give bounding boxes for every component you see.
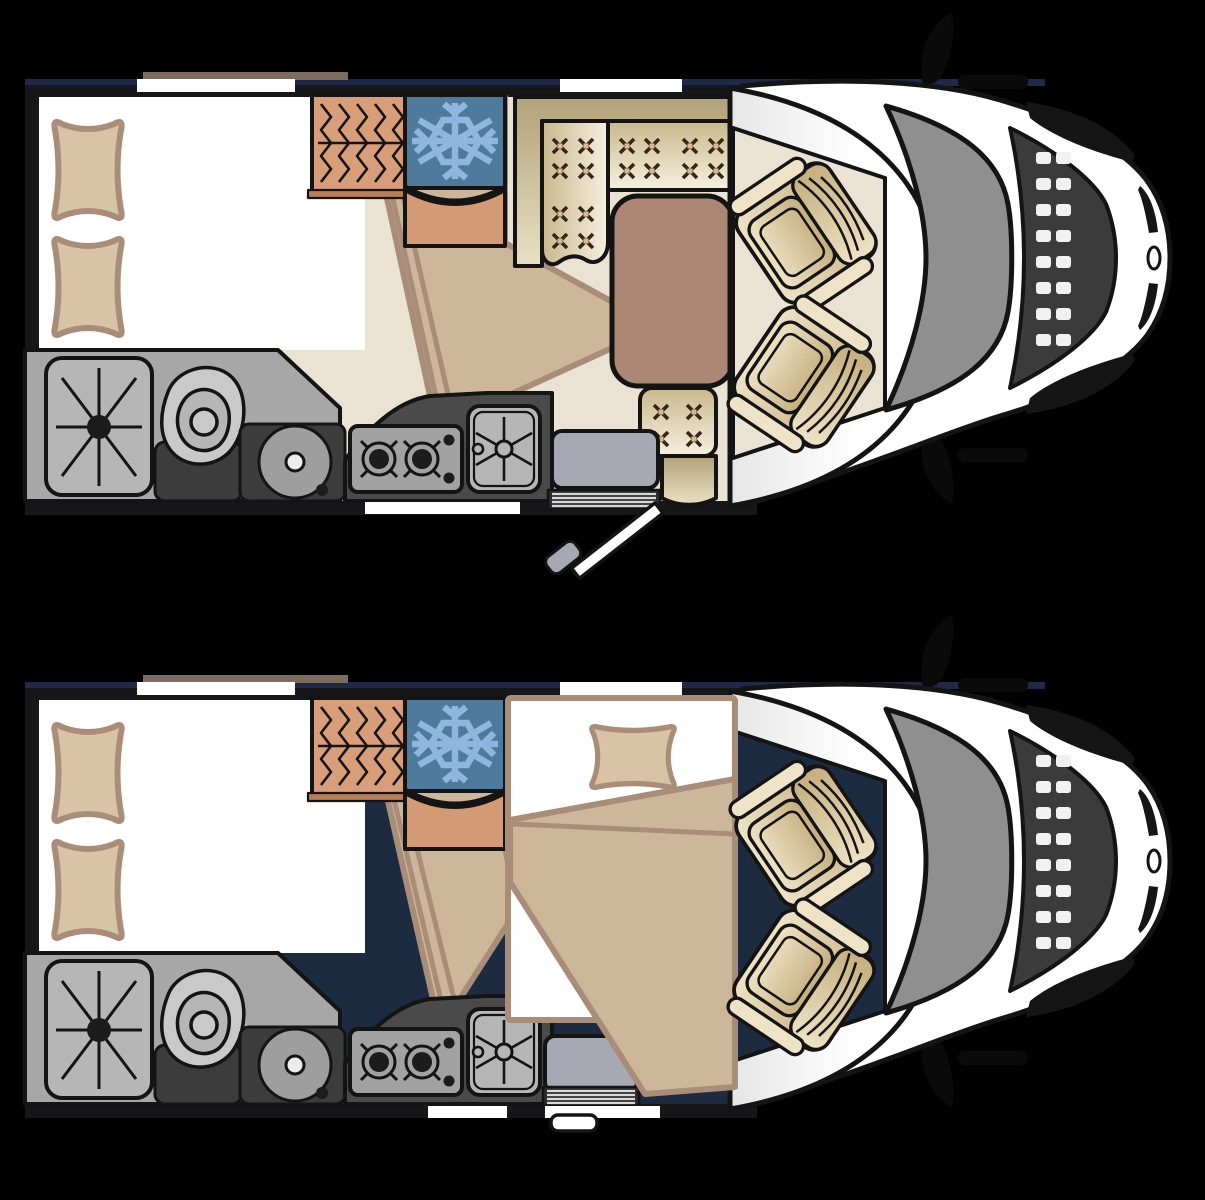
bench-seat — [608, 121, 737, 190]
window — [365, 502, 520, 514]
bench-end-panel — [662, 456, 716, 505]
dining-table — [612, 196, 733, 386]
bench-seat — [542, 121, 608, 264]
door-handle — [551, 1115, 597, 1131]
window — [428, 1106, 507, 1118]
motorhome-floorplan-image: Motorhome floor plan — day and night lay… — [0, 0, 1205, 1200]
entry-step — [552, 431, 658, 488]
